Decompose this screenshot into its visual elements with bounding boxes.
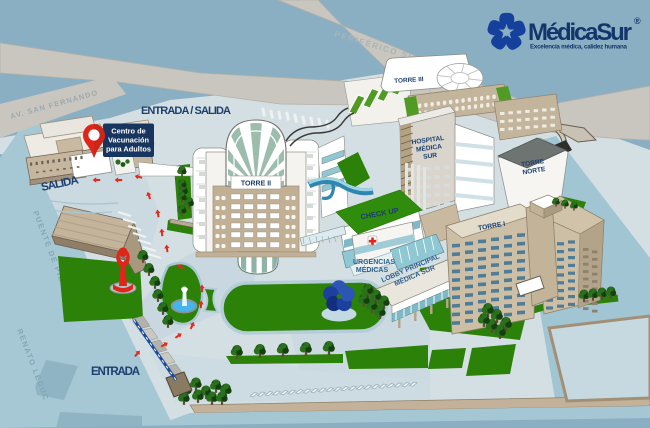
svg-text:TORRE II: TORRE II — [241, 181, 271, 188]
svg-text:Vacunación: Vacunación — [108, 136, 150, 145]
svg-text:ENTRADA: ENTRADA — [91, 366, 140, 378]
svg-text:Excelencia médica, calidez hum: Excelencia médica, calidez humana — [530, 44, 628, 51]
svg-text:para Adultos: para Adultos — [106, 145, 151, 154]
svg-text:MÉDICAS: MÉDICAS — [356, 265, 389, 274]
svg-text:ENTRADA / SALIDA: ENTRADA / SALIDA — [141, 105, 231, 117]
svg-text:Centro de: Centro de — [111, 127, 146, 136]
svg-text:URGENCIAS: URGENCIAS — [353, 259, 395, 266]
svg-text:®: ® — [634, 16, 641, 26]
svg-text:MédicaSur: MédicaSur — [528, 19, 632, 46]
